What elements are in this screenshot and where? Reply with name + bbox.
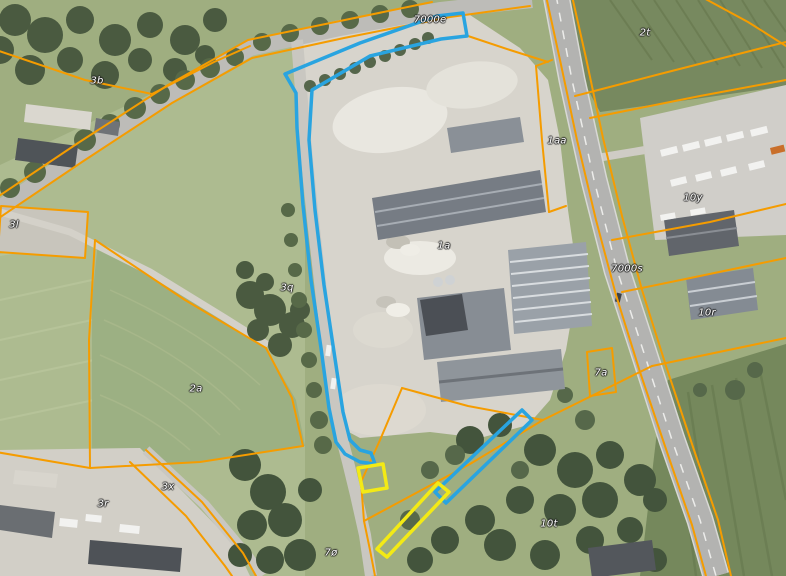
map-canvas[interactable]: 7000e3b2t1aa10y3l3q1a7000s10r7a2a3x3r7ø1…: [0, 0, 786, 576]
aerial-basemap: [0, 0, 786, 576]
